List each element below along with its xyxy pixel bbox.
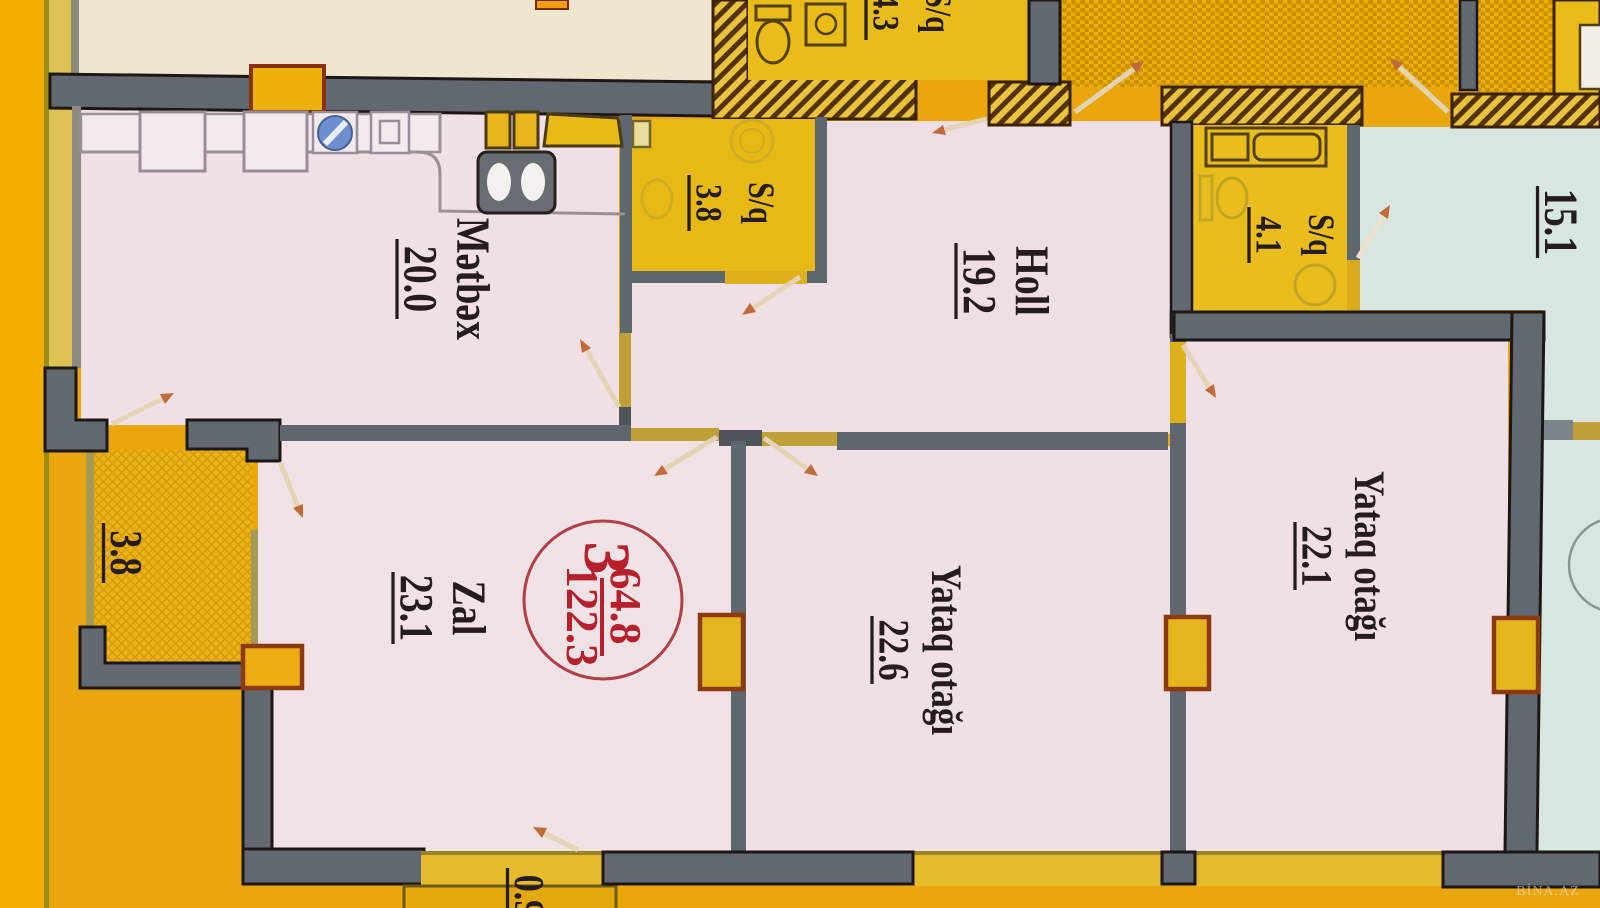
svg-text:19.2: 19.2 <box>952 248 1004 314</box>
svg-text:20.0: 20.0 <box>393 246 445 312</box>
svg-text:Holl: Holl <box>1005 246 1057 316</box>
svg-text:15.1: 15.1 <box>1534 189 1586 255</box>
svg-text:23.1: 23.1 <box>389 575 441 641</box>
svg-text:22.6: 22.6 <box>870 619 919 680</box>
svg-text:3.8: 3.8 <box>101 531 151 576</box>
svg-text:122.3: 122.3 <box>557 565 607 666</box>
svg-text:S/q: S/q <box>740 182 781 224</box>
svg-text:Mətbəx: Mətbəx <box>446 218 498 341</box>
svg-text:3.8: 3.8 <box>688 184 729 221</box>
svg-text:Zal: Zal <box>442 581 494 636</box>
svg-text:Yataq otağı: Yataq otağı <box>922 565 971 735</box>
svg-text:64.8: 64.8 <box>601 568 650 645</box>
svg-text:BİNA.AZ: BİNA.AZ <box>1516 883 1579 899</box>
svg-text:Yataq otağı: Yataq otağı <box>1345 471 1394 641</box>
svg-text:4.3: 4.3 <box>865 0 906 31</box>
svg-text:S/q: S/q <box>1300 214 1341 256</box>
svg-text:22.1: 22.1 <box>1293 525 1342 586</box>
svg-text:S/q: S/q <box>917 0 958 33</box>
svg-text:4.1: 4.1 <box>1248 216 1289 253</box>
svg-text:0.9: 0.9 <box>505 875 551 908</box>
